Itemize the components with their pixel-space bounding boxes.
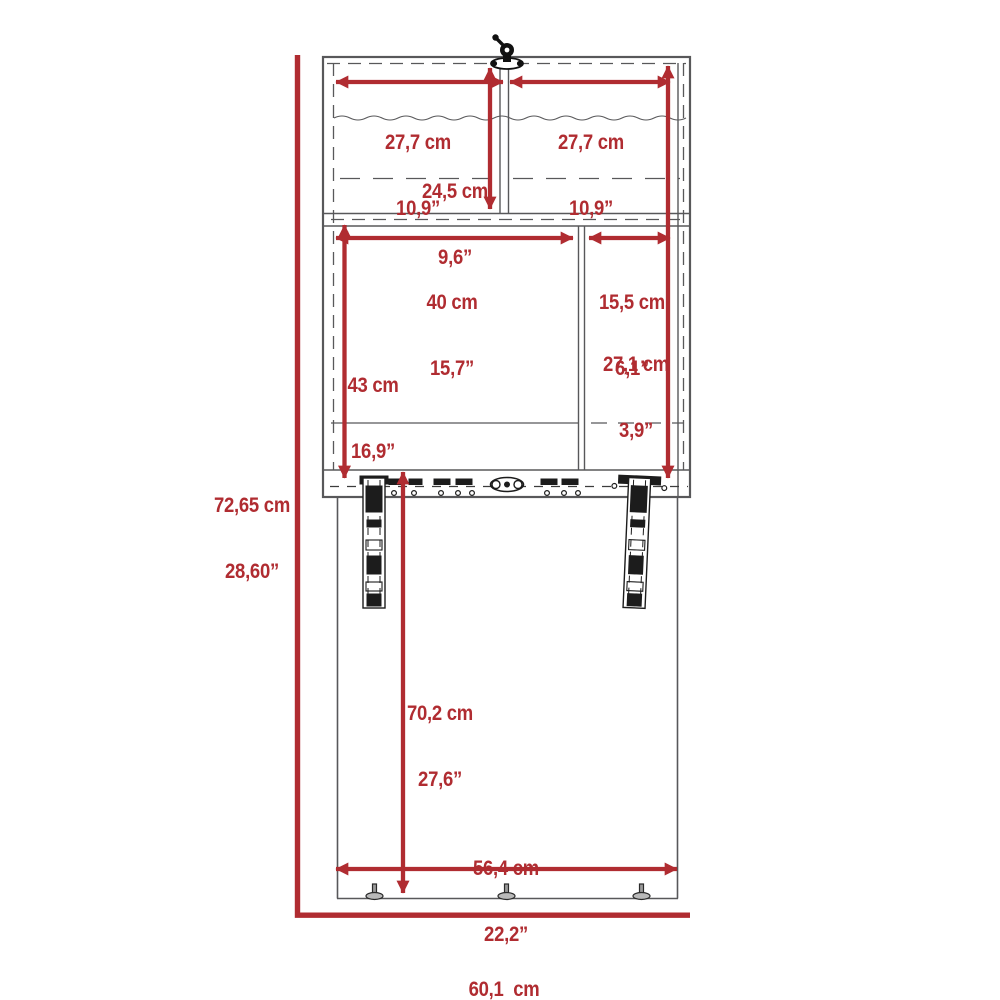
adjustable-foot-icon <box>366 884 383 900</box>
dim-cm: 60,1 cm <box>469 979 540 1000</box>
dim-inch: 16,9” <box>347 441 398 463</box>
dim-inch: 27,6” <box>407 769 473 791</box>
dim-top-right-width: 27,7 cm 10,9” <box>558 88 624 242</box>
dim-cm: 56,4 cm <box>473 858 539 880</box>
dim-inch: 28,60” <box>214 561 290 583</box>
dim-cm: 24,5 cm <box>422 181 488 203</box>
dim-overall-height: 72,65 cm 28,60” <box>214 451 290 605</box>
adjustable-foot-icon <box>633 884 650 900</box>
hinge-plate-icon <box>541 479 580 495</box>
dim-cm: 27,7 cm <box>558 132 624 154</box>
dim-cm: 40 cm <box>426 292 477 314</box>
dim-inch: 15,7” <box>426 358 477 380</box>
fold-down-stay-left-icon <box>360 476 388 608</box>
dim-inch: 10,9” <box>558 198 624 220</box>
dim-cm: 43 cm <box>347 375 398 397</box>
fold-down-stay-right-icon <box>607 475 668 609</box>
hinge-plate-icon <box>434 479 474 495</box>
cam-lock-icon <box>491 34 523 69</box>
dim-cm: 72,65 cm <box>214 495 290 517</box>
top-shelf-compartments <box>324 63 689 226</box>
dim-overall-width: 60,1 cm 23,66” <box>469 935 540 1000</box>
dim-inch: 3,9” <box>603 420 669 442</box>
dim-mid-right-height: 27,1 cm 3,9” <box>603 310 669 464</box>
dim-cm: 70,2 cm <box>407 703 473 725</box>
dim-mid-left-width: 40 cm 15,7” <box>426 248 477 402</box>
furniture-dimension-diagram: 27,7 cm 10,9” 27,7 cm 10,9” 24,5 cm 9,6”… <box>0 0 1000 1000</box>
dim-door-height: 70,2 cm 27,6” <box>407 659 473 813</box>
dim-cm: 27,1 cm <box>603 354 669 376</box>
dim-mid-left-height: 43 cm 16,9” <box>347 331 398 485</box>
latch-plate-icon <box>491 478 524 492</box>
